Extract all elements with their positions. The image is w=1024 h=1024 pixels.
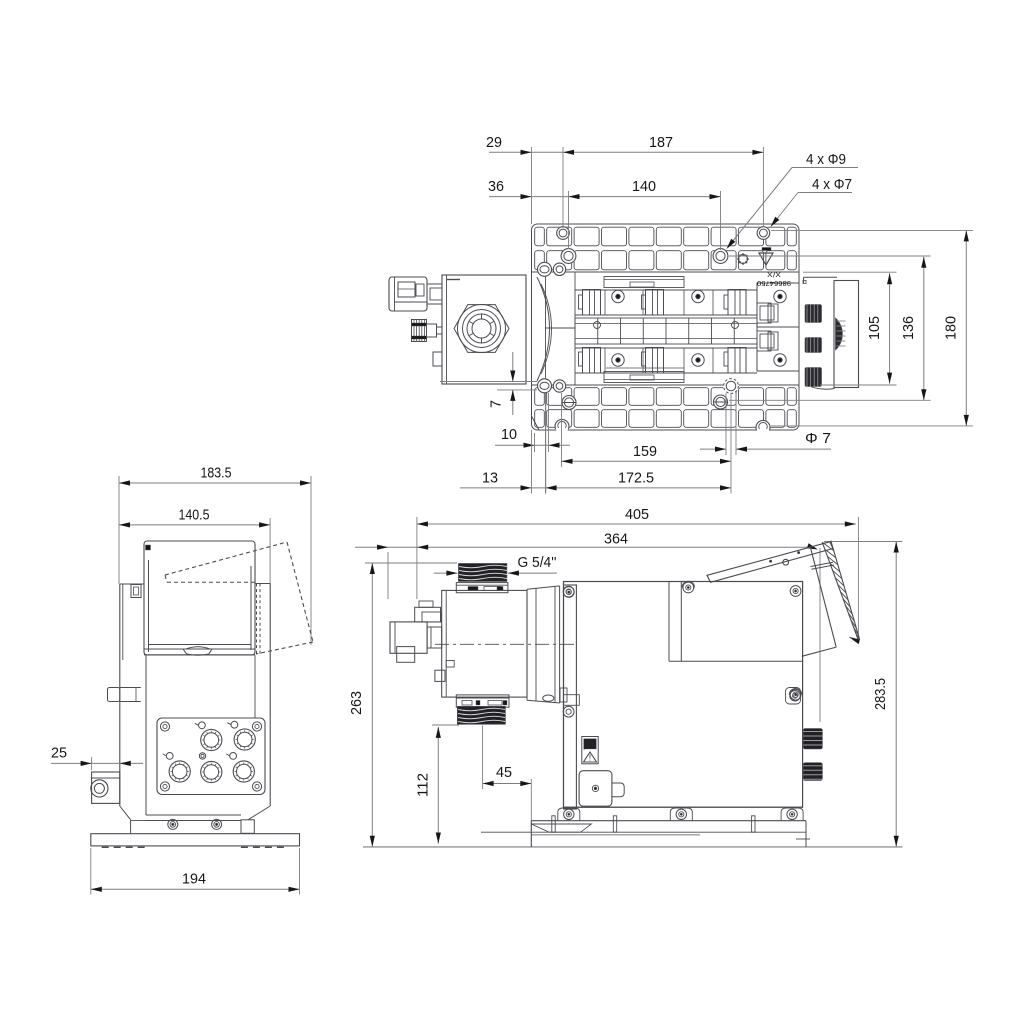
svg-text:98664750: 98664750 xyxy=(757,279,791,286)
svg-text:194: 194 xyxy=(182,871,206,888)
svg-text:183.5: 183.5 xyxy=(201,465,232,482)
svg-text:Φ 7: Φ 7 xyxy=(805,430,831,447)
svg-text:180: 180 xyxy=(943,316,960,340)
svg-text:405: 405 xyxy=(625,506,649,523)
svg-text:140.5: 140.5 xyxy=(179,507,210,524)
svg-text:X/X: X/X xyxy=(767,270,781,277)
svg-text:136: 136 xyxy=(900,316,917,340)
svg-text:10: 10 xyxy=(501,426,517,443)
svg-text:263: 263 xyxy=(348,691,365,715)
svg-text:364: 364 xyxy=(604,531,628,548)
svg-text:25: 25 xyxy=(51,745,67,762)
svg-text:13: 13 xyxy=(482,470,498,487)
svg-text:4 x Φ7: 4 x Φ7 xyxy=(812,177,852,193)
svg-text:29: 29 xyxy=(486,134,502,151)
svg-text:105: 105 xyxy=(866,316,883,340)
svg-text:283.5: 283.5 xyxy=(872,678,889,710)
svg-text:159: 159 xyxy=(633,443,657,460)
svg-text:!: ! xyxy=(589,754,591,763)
svg-text:7: 7 xyxy=(488,400,505,408)
svg-text:4 x Φ9: 4 x Φ9 xyxy=(806,152,846,168)
svg-text:36: 36 xyxy=(488,178,504,195)
svg-text:172.5: 172.5 xyxy=(618,470,654,487)
svg-text:187: 187 xyxy=(649,134,673,151)
svg-text:140: 140 xyxy=(632,178,656,195)
svg-text:G 5/4'': G 5/4'' xyxy=(518,554,557,571)
svg-text:112: 112 xyxy=(415,773,432,797)
svg-text:45: 45 xyxy=(496,764,512,781)
